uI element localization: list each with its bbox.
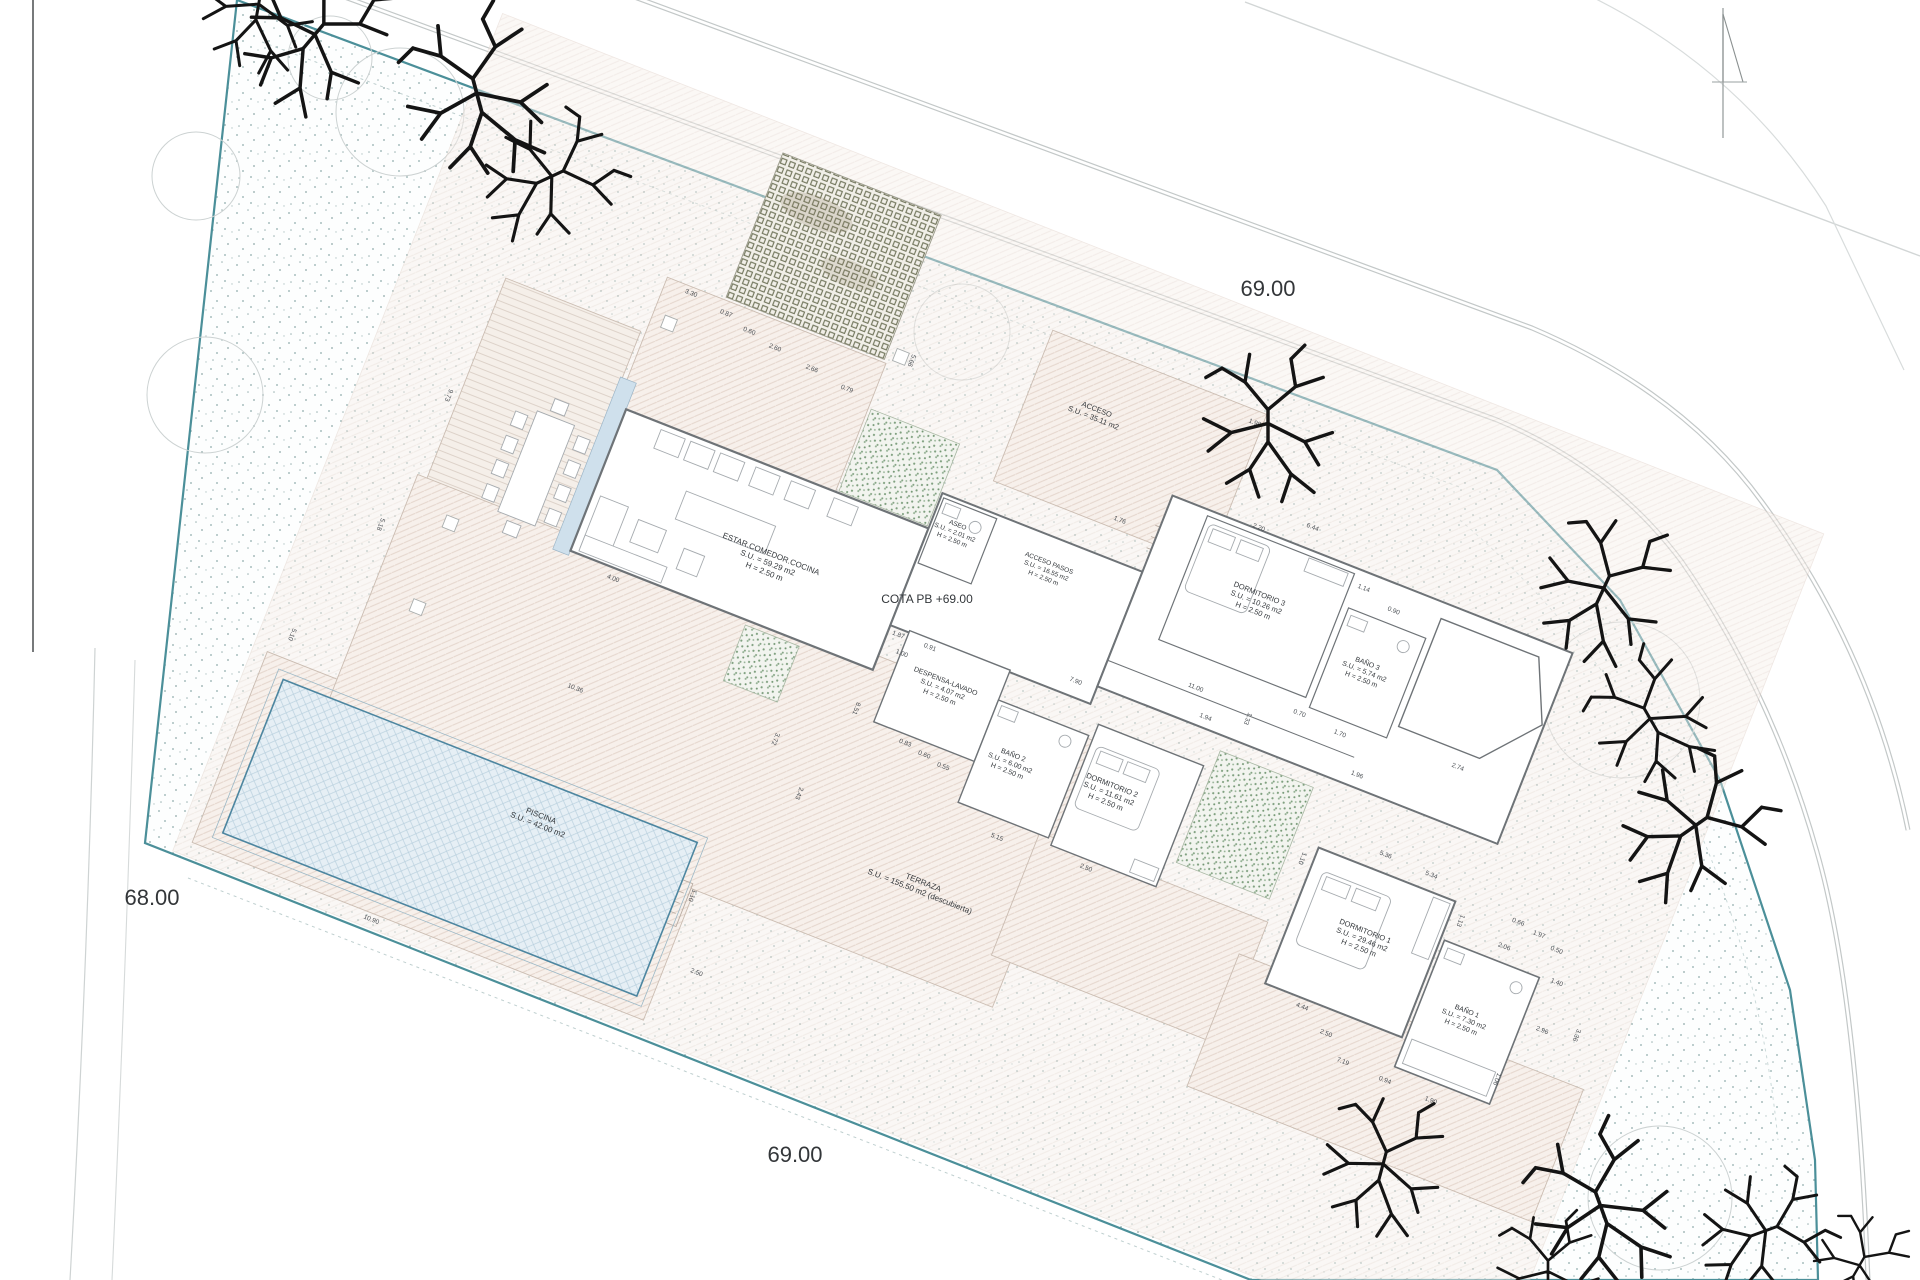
street-line-left-2 bbox=[112, 660, 135, 1280]
elevation-label: 69.00 bbox=[767, 1142, 822, 1167]
road-line-far bbox=[1245, 2, 1920, 256]
room-label-cota-pb: COTA PB +69.00 bbox=[881, 592, 973, 606]
elevation-label: 68.00 bbox=[124, 885, 179, 910]
north-arrow-icon bbox=[1712, 8, 1747, 138]
road-line-curve bbox=[1590, 0, 1904, 370]
site-plan-canvas: ESTAR.COMEDOR.COCINAS.U. = 59.29 m2H = 2… bbox=[0, 0, 1920, 1280]
north-arrow-flag bbox=[1723, 14, 1743, 82]
street-line-left-1 bbox=[70, 648, 95, 1280]
elevation-label: 69.00 bbox=[1240, 276, 1295, 301]
